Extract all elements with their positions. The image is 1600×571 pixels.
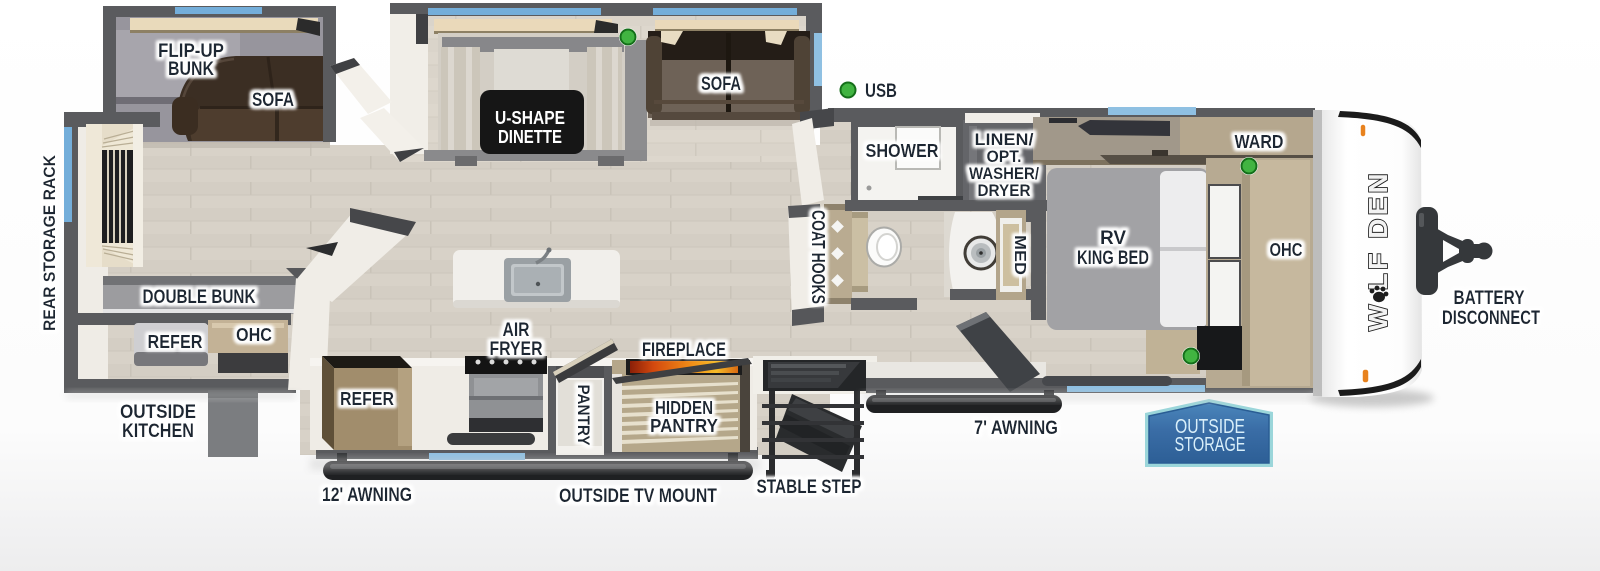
svg-text:SHOWER: SHOWER	[866, 141, 939, 161]
svg-text:OUTSIDE TV MOUNT: OUTSIDE TV MOUNT	[559, 486, 717, 507]
svg-text:DRYER: DRYER	[978, 182, 1031, 200]
svg-text:OHC: OHC	[1270, 240, 1303, 260]
svg-text:WARD: WARD	[1235, 132, 1284, 152]
svg-text:KING BED: KING BED	[1077, 248, 1149, 269]
svg-text:PANTRY: PANTRY	[650, 416, 718, 436]
svg-text:SOFA: SOFA	[701, 74, 741, 95]
svg-text:DOUBLE BUNK: DOUBLE BUNK	[143, 287, 256, 308]
svg-text:KITCHEN: KITCHEN	[122, 421, 194, 442]
svg-text:SOFA: SOFA	[252, 90, 294, 111]
svg-text:BATTERY: BATTERY	[1454, 288, 1525, 309]
svg-text:USB: USB	[865, 81, 897, 102]
svg-text:7' AWNING: 7' AWNING	[974, 418, 1058, 439]
svg-text:REAR STORAGE RACK: REAR STORAGE RACK	[40, 154, 59, 331]
svg-text:OUTSIDE: OUTSIDE	[120, 402, 196, 423]
svg-text:COAT HOOKS: COAT HOOKS	[808, 210, 828, 304]
svg-text:BUNK: BUNK	[168, 59, 214, 80]
svg-text:W LF DEN: W LF DEN	[1363, 170, 1393, 331]
svg-text:DISCONNECT: DISCONNECT	[1442, 308, 1540, 329]
svg-text:WASHER/: WASHER/	[969, 165, 1039, 183]
svg-text:FIREPLACE: FIREPLACE	[642, 340, 726, 361]
svg-text:STABLE STEP: STABLE STEP	[757, 477, 862, 498]
svg-text:REFER: REFER	[340, 389, 394, 409]
svg-text:REFER: REFER	[148, 332, 203, 352]
svg-text:DINETTE: DINETTE	[498, 127, 562, 147]
svg-text:LINEN/: LINEN/	[975, 131, 1034, 149]
svg-text:12' AWNING: 12' AWNING	[322, 485, 412, 506]
svg-text:MED: MED	[1011, 235, 1028, 275]
svg-text:U-SHAPE: U-SHAPE	[495, 108, 565, 128]
svg-text:HIDDEN: HIDDEN	[655, 398, 713, 418]
svg-text:PANTRY: PANTRY	[574, 385, 593, 447]
svg-text:FRYER: FRYER	[490, 339, 543, 360]
svg-text:OHC: OHC	[236, 325, 272, 345]
svg-text:STORAGE: STORAGE	[1175, 434, 1246, 456]
svg-text:RV: RV	[1100, 228, 1126, 249]
svg-text:AIR: AIR	[503, 320, 530, 341]
svg-text:OPT.: OPT.	[987, 148, 1022, 166]
